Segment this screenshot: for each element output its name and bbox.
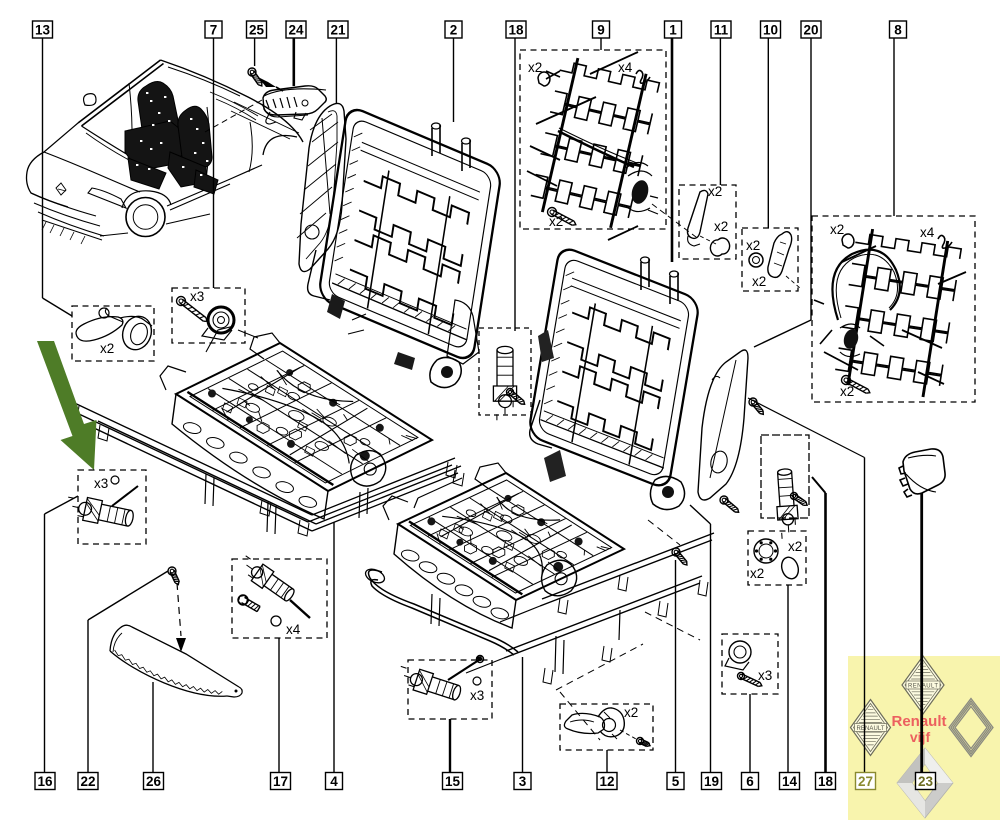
- svg-text:6: 6: [746, 774, 754, 789]
- svg-text:vijf: vijf: [910, 729, 931, 745]
- svg-text:x2: x2: [750, 566, 764, 581]
- svg-text:18: 18: [818, 774, 834, 789]
- svg-text:12: 12: [599, 774, 614, 789]
- svg-text:10: 10: [763, 23, 778, 38]
- svg-text:21: 21: [330, 23, 346, 38]
- svg-text:x2: x2: [788, 539, 802, 554]
- svg-text:27: 27: [858, 774, 873, 789]
- svg-text:x3: x3: [470, 688, 484, 703]
- svg-text:x2: x2: [549, 214, 563, 229]
- svg-text:x2: x2: [752, 274, 766, 289]
- svg-text:22: 22: [80, 774, 95, 789]
- svg-text:x3: x3: [758, 668, 772, 683]
- svg-text:15: 15: [445, 774, 461, 789]
- svg-text:20: 20: [803, 23, 818, 38]
- svg-text:3: 3: [519, 774, 527, 789]
- svg-text:x2: x2: [100, 341, 114, 356]
- svg-text:1: 1: [669, 23, 677, 38]
- svg-text:2: 2: [450, 23, 458, 38]
- svg-text:x2: x2: [746, 238, 760, 253]
- svg-text:26: 26: [146, 774, 162, 789]
- svg-text:x4: x4: [618, 60, 633, 75]
- svg-text:13: 13: [35, 23, 51, 38]
- svg-text:9: 9: [597, 23, 605, 38]
- svg-text:RENAULT: RENAULT: [908, 684, 938, 690]
- svg-text:14: 14: [782, 774, 798, 789]
- svg-text:8: 8: [894, 23, 902, 38]
- svg-text:23: 23: [918, 774, 934, 789]
- svg-text:19: 19: [704, 774, 719, 789]
- svg-text:x3: x3: [190, 289, 204, 304]
- svg-text:Renault: Renault: [891, 713, 946, 730]
- svg-text:x2: x2: [830, 222, 844, 237]
- svg-text:x4: x4: [920, 225, 935, 240]
- svg-text:x4: x4: [286, 622, 301, 637]
- svg-text:x2: x2: [624, 705, 638, 720]
- svg-text:x2: x2: [840, 384, 854, 399]
- svg-text:16: 16: [37, 774, 53, 789]
- svg-text:RENAULT: RENAULT: [857, 726, 885, 732]
- svg-text:5: 5: [672, 774, 680, 789]
- svg-text:x2: x2: [708, 184, 722, 199]
- svg-text:25: 25: [249, 23, 265, 38]
- svg-text:x2: x2: [714, 219, 728, 234]
- svg-text:7: 7: [210, 23, 218, 38]
- svg-text:4: 4: [330, 774, 338, 789]
- svg-text:24: 24: [288, 23, 304, 38]
- svg-text:x3: x3: [94, 476, 108, 491]
- svg-text:17: 17: [273, 774, 288, 789]
- svg-text:18: 18: [508, 23, 524, 38]
- svg-text:11: 11: [714, 23, 729, 38]
